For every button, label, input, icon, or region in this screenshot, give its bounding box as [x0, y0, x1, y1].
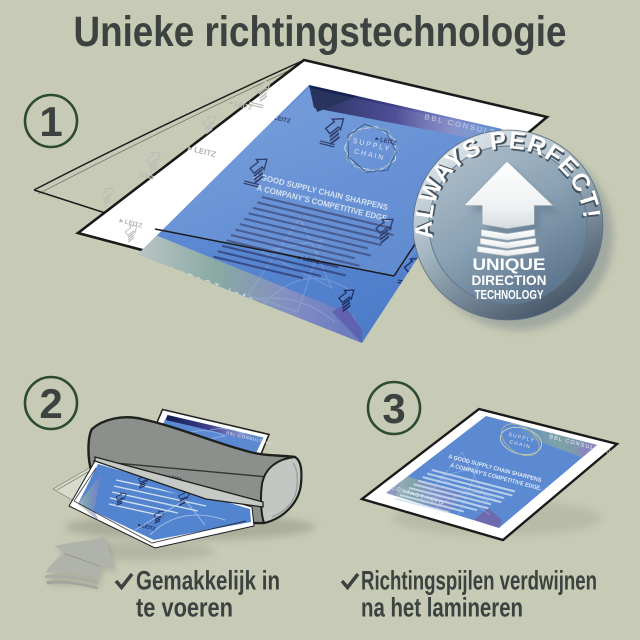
- svg-text:1: 1: [39, 98, 62, 145]
- svg-text:TECHNOLOGY: TECHNOLOGY: [475, 287, 544, 302]
- svg-text:Richtingspijlen verdwijnen: Richtingspijlen verdwijnen: [361, 566, 597, 596]
- svg-text:te voeren: te voeren: [136, 593, 233, 623]
- svg-text:Unieke richtingstechnologie: Unieke richtingstechnologie: [74, 8, 567, 56]
- svg-text:Gemakkelijk in: Gemakkelijk in: [136, 566, 280, 596]
- svg-text:DIRECTION: DIRECTION: [472, 272, 547, 288]
- svg-text:2: 2: [39, 380, 62, 427]
- svg-text:3: 3: [382, 385, 405, 432]
- svg-text:na het lamineren: na het lamineren: [361, 593, 523, 623]
